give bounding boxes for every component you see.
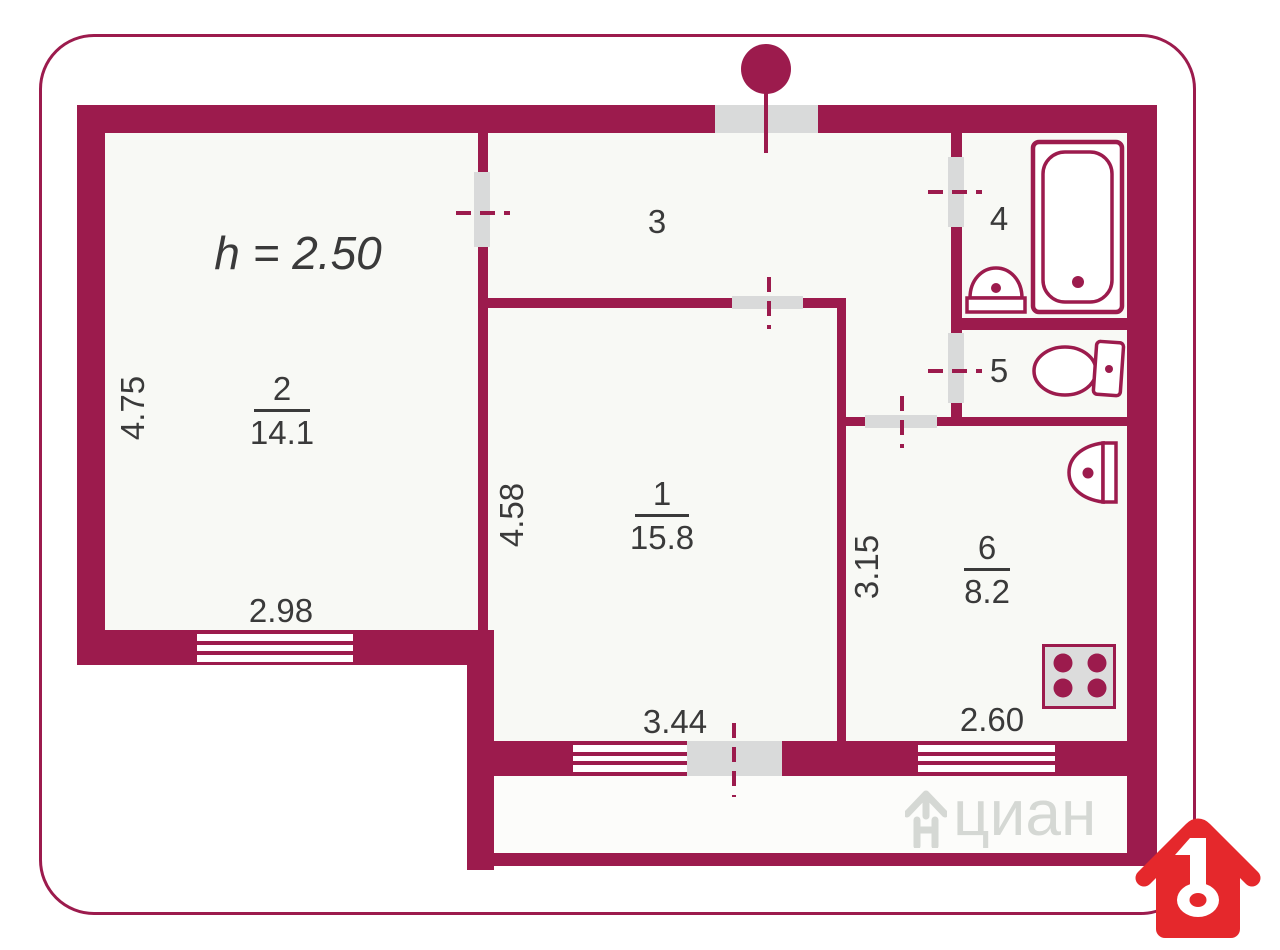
room6-label: 6 8.2 bbox=[942, 531, 1032, 609]
bathtub-icon bbox=[1030, 139, 1125, 315]
window-kitchen bbox=[918, 745, 1055, 772]
door-room2 bbox=[474, 172, 490, 247]
wall-left bbox=[77, 105, 105, 665]
ceiling-height-label: h = 2.50 bbox=[163, 226, 433, 280]
wall-top bbox=[77, 105, 1157, 133]
toilet-icon bbox=[1026, 336, 1126, 400]
door-room1-dash bbox=[767, 277, 771, 329]
bath-sink-icon bbox=[963, 263, 1029, 316]
floor-plan: h = 2.50 2 14.1 1 15.8 6 8.2 3 4 5 4.75 … bbox=[0, 0, 1280, 950]
door-room2-dash bbox=[456, 211, 510, 215]
dim-kitchen-height: 3.15 bbox=[847, 507, 887, 627]
room6-area: 8.2 bbox=[942, 575, 1032, 609]
watermark: циан bbox=[905, 778, 1096, 848]
kitchen-sink-icon bbox=[1066, 440, 1119, 506]
dim-room2-height: 4.75 bbox=[113, 348, 153, 468]
watermark-house-icon bbox=[905, 790, 947, 848]
room1-label: 1 15.8 bbox=[617, 477, 707, 555]
door-toilet bbox=[948, 333, 964, 403]
room1-area: 15.8 bbox=[617, 521, 707, 555]
room5-label: 5 bbox=[969, 351, 1029, 391]
dim-room2-width: 2.98 bbox=[221, 591, 341, 631]
wall-balcony-bottom bbox=[494, 853, 1157, 866]
stove-icon bbox=[1042, 644, 1116, 709]
window-room1 bbox=[573, 745, 687, 772]
watermark-text: циан bbox=[953, 778, 1096, 848]
room1-number: 1 bbox=[617, 477, 707, 511]
dim-room1-width: 3.44 bbox=[615, 702, 735, 742]
entrance-door-icon bbox=[741, 44, 791, 94]
entrance-door-stem bbox=[764, 92, 768, 153]
window-room2 bbox=[197, 634, 353, 662]
room2-number: 2 bbox=[237, 372, 327, 406]
room2-label: 2 14.1 bbox=[237, 372, 327, 450]
room4-label: 4 bbox=[969, 199, 1029, 239]
cian-house-key-icon bbox=[1132, 800, 1264, 944]
dim-room1-height: 4.58 bbox=[492, 455, 532, 575]
room6-number: 6 bbox=[942, 531, 1032, 565]
door-bath-dash bbox=[928, 190, 982, 194]
room2-area: 14.1 bbox=[237, 416, 327, 450]
wall-room1-kitchen bbox=[837, 298, 846, 741]
dim-kitchen-width: 2.60 bbox=[932, 700, 1052, 740]
wall-bath-bottom bbox=[951, 318, 1127, 330]
room3-label: 3 bbox=[627, 202, 687, 242]
door-kitchen-dash bbox=[900, 396, 904, 448]
